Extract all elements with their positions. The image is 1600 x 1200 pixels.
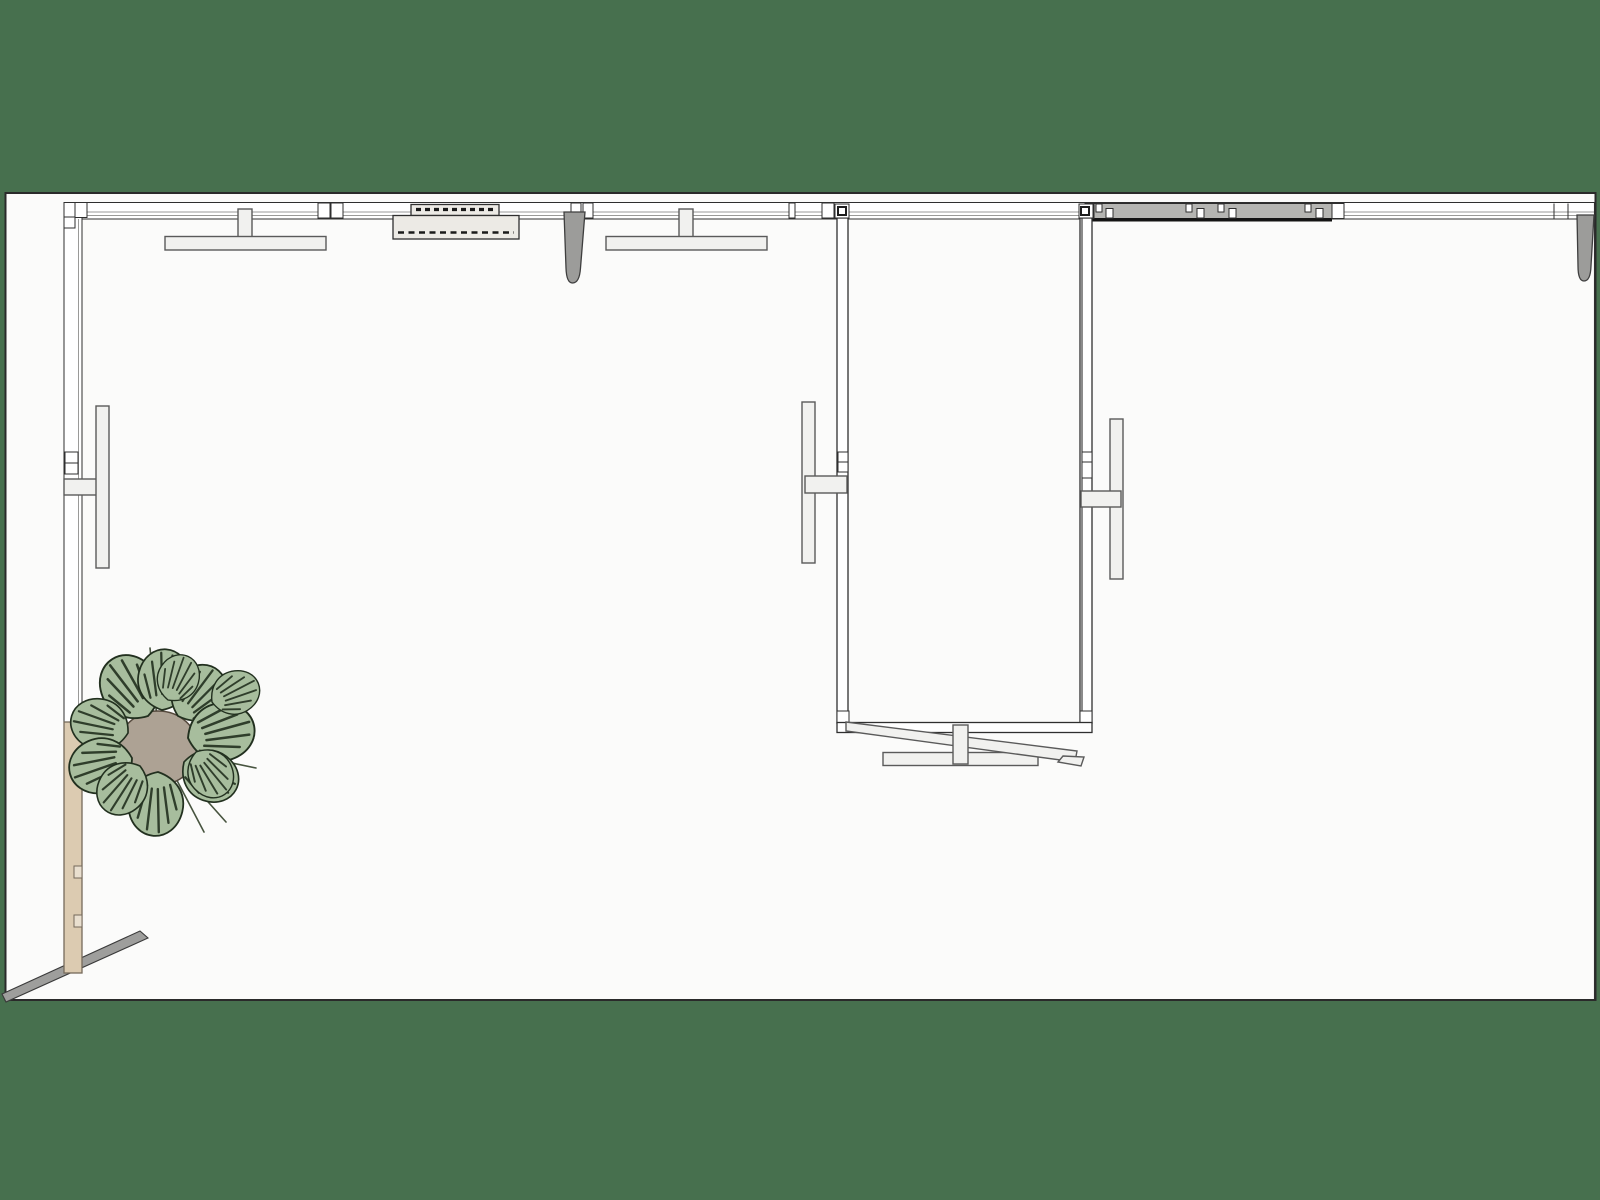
column-joint <box>74 915 82 927</box>
model-viewport[interactable]: Top-down orthographic plan view of a gal… <box>0 0 1600 1200</box>
floor-canvas[interactable] <box>6 193 1596 1000</box>
light-bar <box>96 406 109 568</box>
column-joint <box>74 866 82 878</box>
light-bar <box>165 237 326 251</box>
ac-body <box>393 216 519 240</box>
track-shadow-line <box>1085 218 1332 222</box>
light-stem <box>1081 491 1121 507</box>
light-stem <box>805 476 847 493</box>
track-joint <box>1332 204 1344 219</box>
ceiling-track[interactable] <box>1085 204 1344 222</box>
light-stem <box>953 725 968 764</box>
light-bar <box>606 237 767 251</box>
